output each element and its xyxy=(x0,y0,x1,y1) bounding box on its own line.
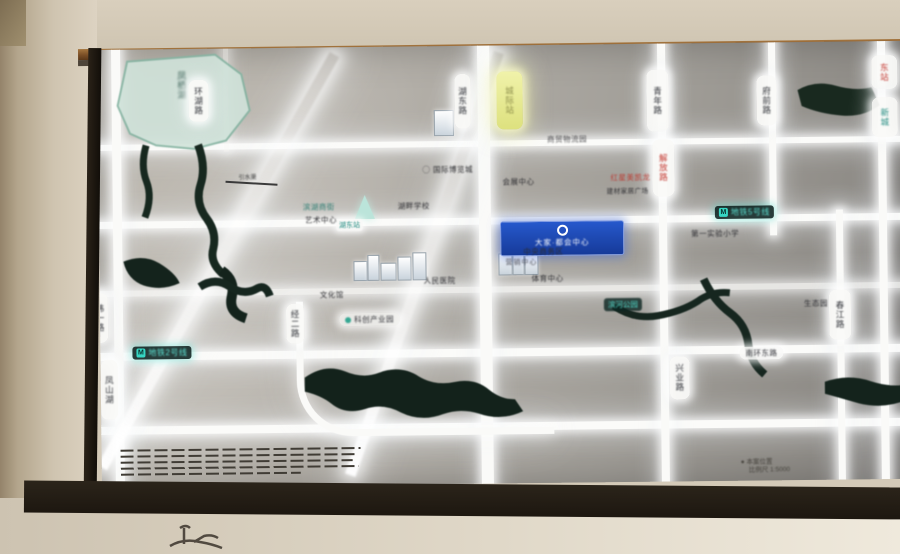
edge-label-text: 东站 xyxy=(878,63,890,82)
lake-shape xyxy=(117,54,250,149)
building-icon xyxy=(397,256,411,280)
metro-line-2-badge: M 地铁2号线 xyxy=(132,346,191,360)
wall-left xyxy=(0,0,97,554)
poi-label-red: 红星美凯龙 xyxy=(610,172,650,183)
road-pill: 春江路 xyxy=(829,289,852,339)
building-icon xyxy=(380,263,396,281)
pond-west xyxy=(123,258,179,289)
road-pill-label: 经二路 xyxy=(289,309,301,338)
dot-icon xyxy=(345,317,351,323)
stream-east xyxy=(198,145,223,275)
road-pill-red: 解放路 xyxy=(652,139,675,196)
poi-label: 建材家居广场 xyxy=(607,185,649,195)
station-small-box: 湖东站 xyxy=(336,219,363,231)
building-icon xyxy=(367,255,379,281)
poi-label: 中央商务区 xyxy=(523,246,563,257)
poi-label: 生态园 xyxy=(804,298,828,309)
photo-of-illuminated-map-display: 凤栖湖 环湖路 湖东路 城际站 青年路 解放路 府前路 纬一路 经二路 兴业路 … xyxy=(0,0,900,554)
scale-note-line2: 比例尺 1:5000 xyxy=(749,463,790,473)
road-pill: 兴业路 xyxy=(670,356,690,399)
poi-label: 湖畔学校 xyxy=(398,200,430,211)
station-pill-yellow: 城际站 xyxy=(496,71,523,129)
metro-icon: M xyxy=(136,348,145,357)
wall-sketch-object xyxy=(140,518,280,554)
stream-west xyxy=(143,145,149,217)
road-pill: 环湖路 xyxy=(188,80,208,122)
metro-icon: M xyxy=(719,208,728,217)
poi-label: 会展中心 xyxy=(502,176,534,187)
capsule-label: 南环东路 xyxy=(745,347,777,358)
edge-label-red: 东站 xyxy=(871,55,897,89)
poi-label: 艺术中心 xyxy=(305,214,337,225)
road-pill-label: 解放路 xyxy=(657,154,669,183)
edge-label-teal: 新城 xyxy=(872,97,898,137)
glass-pyramid-building-icon xyxy=(355,195,375,219)
metro-badge-label: 地铁5号线 xyxy=(731,206,770,217)
road-pill-label: 兴业路 xyxy=(674,364,686,393)
road-pill: 青年路 xyxy=(646,70,669,132)
road-pill: 湖东路 xyxy=(454,74,471,129)
metro-badge-label: 地铁2号线 xyxy=(148,347,187,358)
poi-label: 文化馆 xyxy=(320,289,344,300)
poi-label: 商贸物流园 xyxy=(547,133,587,144)
lake-pill-label: 凤山湖 xyxy=(103,376,115,405)
poi-label: 人民医院 xyxy=(424,275,456,286)
road-pill-label: 环湖路 xyxy=(192,87,204,116)
illuminated-map-board: 凤栖湖 环湖路 湖东路 城际站 青年路 解放路 府前路 纬一路 经二路 兴业路 … xyxy=(97,41,900,488)
poi-label-teal: 滨湖商街 xyxy=(303,201,335,212)
park-northeast xyxy=(797,83,879,116)
road-capsule: 南环东路 xyxy=(739,346,783,359)
river-south xyxy=(305,366,524,419)
building-icon xyxy=(434,110,454,136)
road-pill-label: 春江路 xyxy=(834,300,846,329)
pond-southeast xyxy=(825,377,900,406)
park-badge: 滨河公园 xyxy=(604,298,642,311)
project-logo-icon xyxy=(557,225,568,236)
poi-label: 国际博览城 xyxy=(433,165,473,174)
poi-capsule: 科创产业园 xyxy=(339,313,400,327)
road-pill: 府前路 xyxy=(756,75,777,125)
capsule-label: 科创产业园 xyxy=(354,314,394,325)
road-pill-label: 青年路 xyxy=(651,86,663,115)
station-pill-label: 城际站 xyxy=(503,86,515,115)
building-icon xyxy=(353,261,367,281)
metro-line-5-badge: M 地铁5号线 xyxy=(715,205,774,219)
lake-name-pill: 凤山湖 xyxy=(101,360,119,420)
road-pill: 经二路 xyxy=(286,304,304,344)
edge-label-text: 新城 xyxy=(879,107,891,126)
river-diagonal xyxy=(704,278,765,375)
road-pill-label: 湖东路 xyxy=(456,87,468,116)
poi-label: 体育中心 xyxy=(532,273,564,284)
wall-corner-shadow xyxy=(0,0,26,46)
road-pill-label: 府前路 xyxy=(760,86,772,115)
project-subtitle: 营销中心 xyxy=(505,257,537,267)
poi-label-with-icon: ◯ 国际博览城 xyxy=(422,164,473,176)
lake-name-label: 凤栖湖 xyxy=(175,71,188,100)
annotation-text: 引水渠 xyxy=(238,172,256,181)
poi-label: 第一实验小学 xyxy=(691,228,739,240)
